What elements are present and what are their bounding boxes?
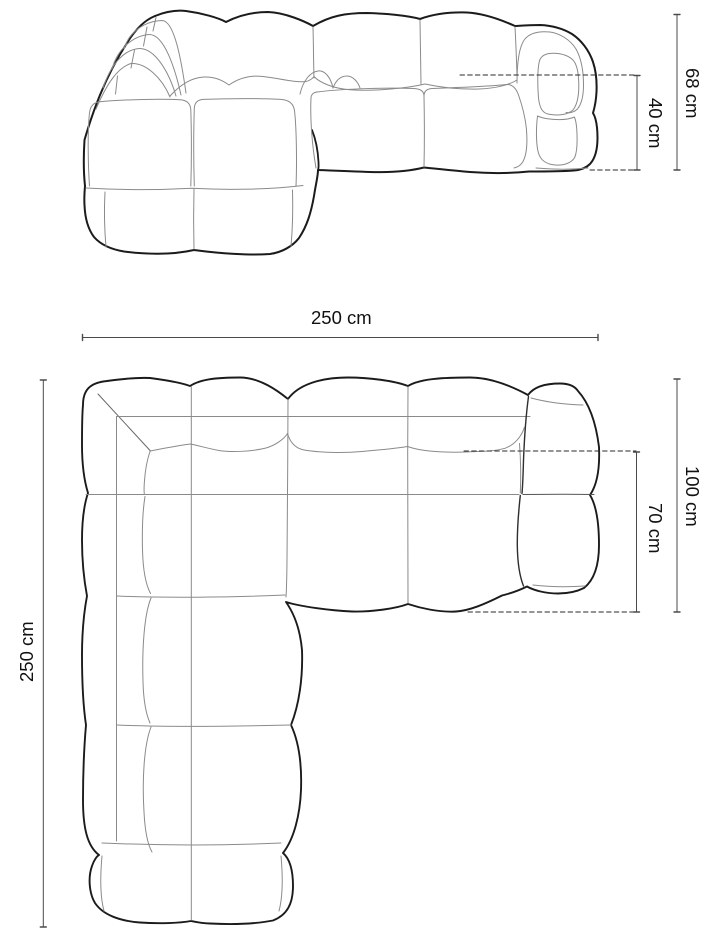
svg-text:68 cm: 68 cm <box>682 68 703 118</box>
svg-text:70 cm: 70 cm <box>645 503 666 553</box>
svg-text:250 cm: 250 cm <box>16 621 37 682</box>
svg-text:250 cm: 250 cm <box>311 307 372 328</box>
svg-text:100 cm: 100 cm <box>682 466 703 527</box>
svg-text:40 cm: 40 cm <box>645 98 666 148</box>
